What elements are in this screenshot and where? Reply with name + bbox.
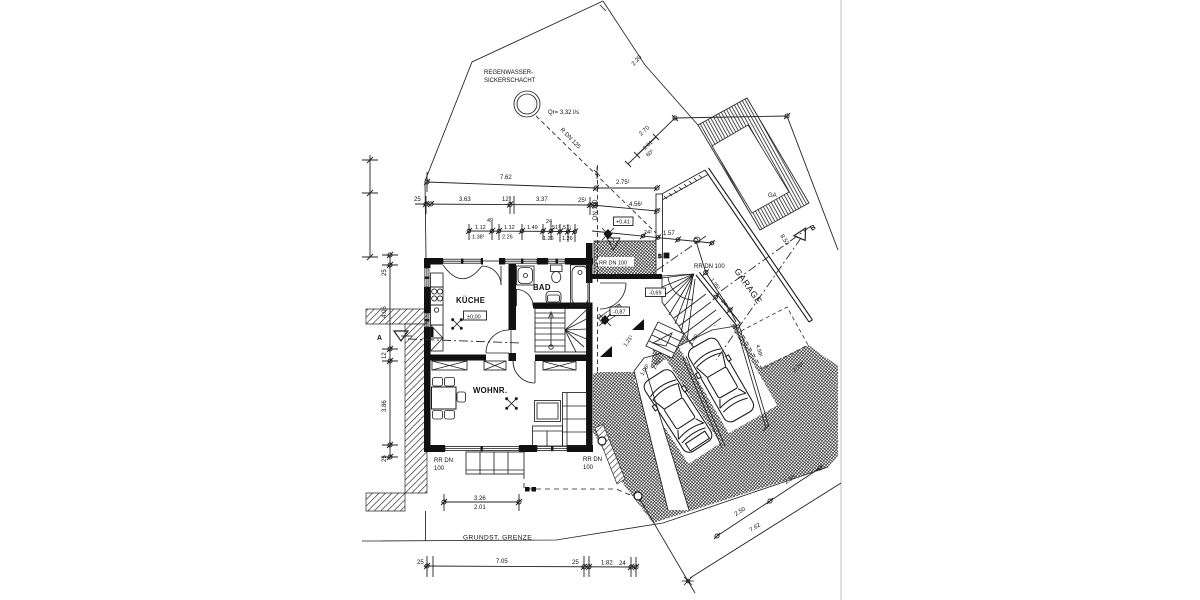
svg-text:2.26: 2.26 [502,235,513,241]
svg-text:REGENWASSER-: REGENWASSER- [484,70,533,76]
svg-text:RR DN: RR DN [583,457,602,463]
svg-text:12: 12 [382,352,388,359]
svg-text:7.62: 7.62 [500,175,512,181]
svg-text:RR DN: RR DN [434,458,453,464]
svg-text:RR DN 100: RR DN 100 [599,260,627,266]
svg-text:25: 25 [414,197,421,203]
svg-text:51¹: 51¹ [563,225,571,231]
svg-text:1.82: 1.82 [601,561,613,567]
svg-text:1.49: 1.49 [527,225,538,231]
svg-text:KÜCHE: KÜCHE [456,296,485,305]
svg-text:-0,69: -0,69 [649,291,662,297]
svg-text:±0,00: ±0,00 [467,314,481,320]
svg-text:1.26: 1.26 [543,236,554,242]
svg-text:3.37: 3.37 [536,197,548,203]
svg-text:100: 100 [434,466,445,472]
svg-text:25¹: 25¹ [578,198,587,204]
svg-text:DN 100: DN 100 [593,199,599,220]
svg-text:1.26: 1.26 [562,236,573,242]
svg-text:51¹: 51¹ [552,225,560,231]
svg-text:3.63: 3.63 [459,197,471,203]
svg-text:RR DN 100: RR DN 100 [694,264,725,270]
svg-text:2.75¹: 2.75¹ [616,180,630,186]
svg-text:25: 25 [417,560,424,566]
svg-text:GA: GA [768,193,777,199]
svg-text:WOHNR.: WOHNR. [473,386,507,395]
svg-text:25: 25 [382,455,388,462]
svg-text:S: S [658,254,662,260]
svg-text:100: 100 [583,465,594,471]
svg-text:25: 25 [572,560,579,566]
svg-text:A: A [377,335,382,342]
svg-text:3.86: 3.86 [382,400,388,412]
svg-text:4.06: 4.06 [382,306,388,318]
svg-text:24: 24 [619,561,626,567]
svg-text:12: 12 [502,197,509,203]
svg-text:Qr= 3,32 l/s: Qr= 3,32 l/s [548,110,579,116]
svg-text:1.57: 1.57 [663,231,675,237]
svg-text:24¹: 24¹ [644,230,652,236]
svg-text:+0,41: +0,41 [616,220,630,226]
svg-text:GRUNDST. GRENZE: GRUNDST. GRENZE [463,535,532,542]
svg-text:SICKERSCHACHT: SICKERSCHACHT [484,78,536,84]
svg-text:2.01: 2.01 [474,505,486,511]
svg-text:3.26: 3.26 [474,496,486,502]
svg-text:49: 49 [487,218,493,224]
svg-text:BAD: BAD [533,283,551,292]
svg-text:1.12: 1.12 [504,225,515,231]
svg-text:25: 25 [382,269,388,276]
svg-text:1.38¹: 1.38¹ [472,235,485,241]
svg-text:7.05: 7.05 [496,559,508,565]
svg-text:4.56¹: 4.56¹ [629,202,643,208]
svg-text:-0,87: -0,87 [613,310,626,316]
svg-text:1.12: 1.12 [475,225,486,231]
